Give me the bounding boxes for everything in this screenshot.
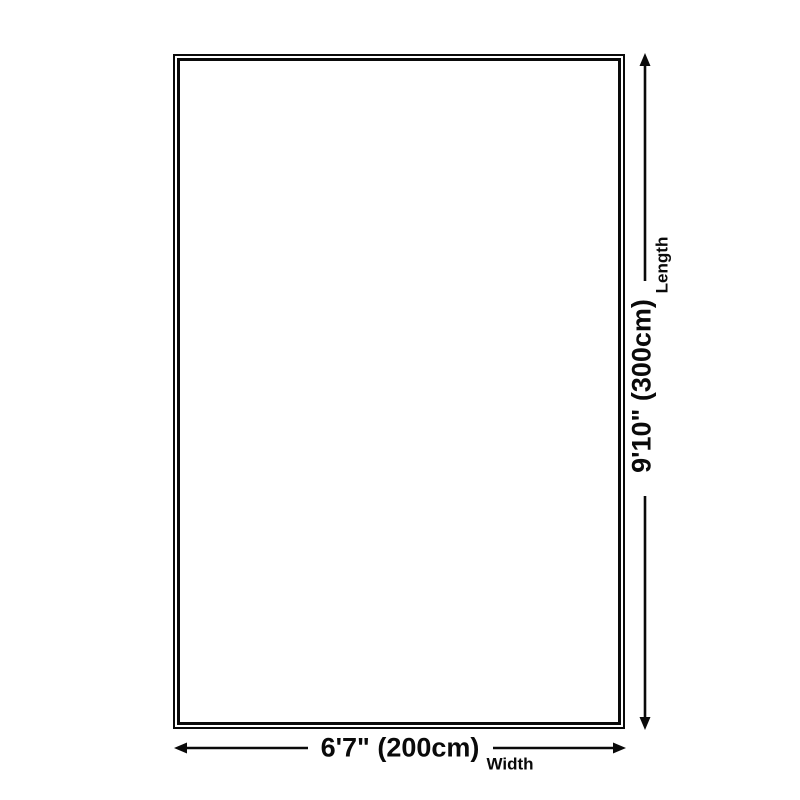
width-dimension-value: 6'7" (200cm) [321, 735, 480, 762]
length-dimension-label: Length [654, 237, 671, 294]
width-dimension-label: Width [486, 756, 533, 773]
product-outline-inner [177, 58, 621, 725]
size-diagram: 9'10" (300cm) Length 6'7" (200cm) Width [0, 0, 800, 800]
product-outline-outer [173, 54, 625, 729]
length-dimension-value: 9'10" (300cm) [629, 299, 656, 473]
